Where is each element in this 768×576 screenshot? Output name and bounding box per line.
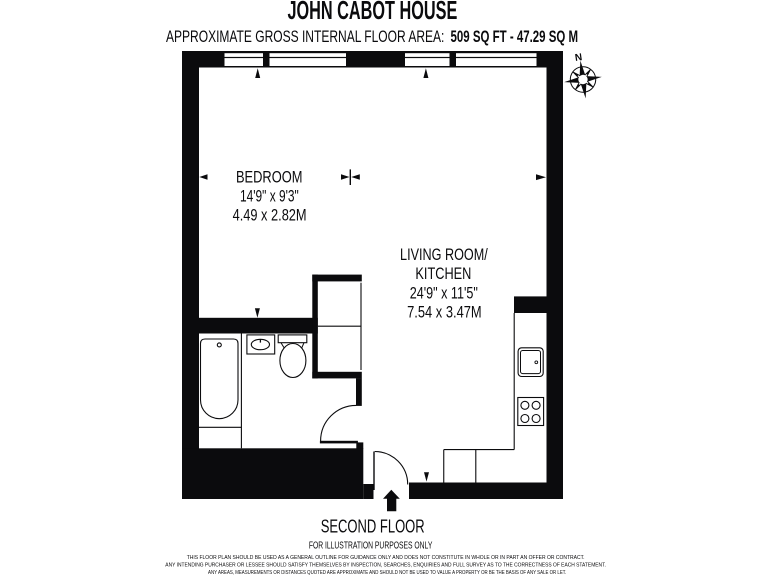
svg-text:APPROXIMATE GROSS INTERNAL FLO: APPROXIMATE GROSS INTERNAL FLOOR AREA:	[166, 27, 444, 46]
svg-text:ANY AREAS, MEASUREMENTS OR DIS: ANY AREAS, MEASUREMENTS OR DISTANCES QUO…	[208, 570, 566, 576]
svg-text:BEDROOM: BEDROOM	[236, 167, 303, 186]
svg-text:JOHN CABOT HOUSE: JOHN CABOT HOUSE	[288, 0, 458, 25]
svg-text:509 SQ FT - 47.29 SQ M: 509 SQ FT - 47.29 SQ M	[451, 27, 579, 46]
svg-text:4.49 x 2.82M: 4.49 x 2.82M	[233, 206, 307, 225]
svg-text:7.54 x 3.47M: 7.54 x 3.47M	[407, 303, 482, 322]
svg-text:N: N	[574, 52, 583, 64]
svg-text:SECOND FLOOR: SECOND FLOOR	[321, 516, 425, 537]
svg-text:THIS FLOOR PLAN SHOULD BE USED: THIS FLOOR PLAN SHOULD BE USED AS A GENE…	[187, 555, 585, 561]
svg-text:14'9" x 9'3": 14'9" x 9'3"	[240, 187, 299, 206]
svg-text:24'9" x 11'5": 24'9" x 11'5"	[410, 284, 478, 303]
svg-text:ANY INTENDING PURCHASER OR LES: ANY INTENDING PURCHASER OR LESSEE SHOULD…	[165, 563, 606, 569]
svg-text:KITCHEN: KITCHEN	[415, 264, 471, 283]
svg-text:FOR ILLUSTRATION PURPOSES ONLY: FOR ILLUSTRATION PURPOSES ONLY	[309, 540, 433, 551]
svg-text:LIVING ROOM/: LIVING ROOM/	[400, 245, 488, 264]
